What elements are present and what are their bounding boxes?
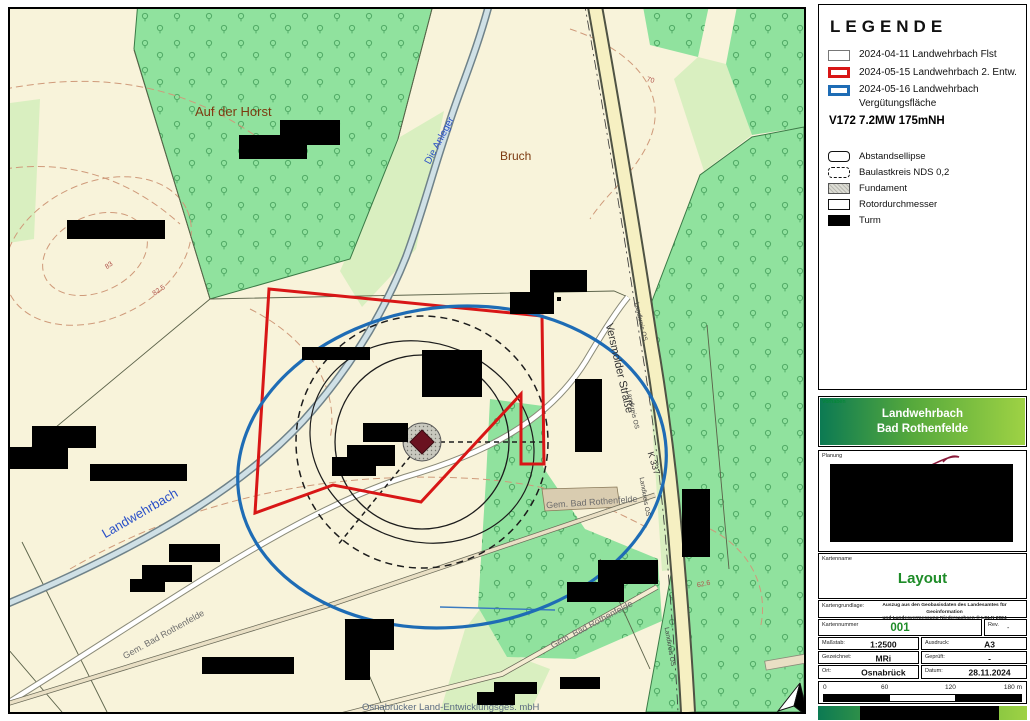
rev-box: Rev. - (984, 619, 1027, 636)
vorhaben-box: Landwehrbach Bad Rothenfelde Vorhaben (818, 396, 1027, 447)
ausdruck-cell: Ausdruck: A3 (921, 637, 1027, 650)
scale-tick-120: 120 (945, 684, 956, 691)
datum-value: 28.11.2024 (953, 667, 1026, 677)
kartenname-box: Kartenname Layout (818, 553, 1027, 599)
legend-symbols: Abstandsellipse Baulastkreis NDS 0,2 Fun… (828, 151, 1017, 226)
row-ort-datum: Ort: Osnabrück Datum: 28.11.2024 (818, 665, 1027, 679)
row-massstab-ausdruck: Maßstab: 1:2500 Ausdruck: A3 (818, 637, 1027, 650)
turm-swatch (828, 215, 850, 226)
blue-swatch (828, 85, 850, 96)
planung-redaction (830, 464, 1013, 542)
footer-gradient-strip (818, 706, 1027, 720)
massstab-value: 1:2500 (849, 639, 918, 649)
legend-box: LEGENDE 2024-04-11 Landwehrbach Flst 202… (818, 4, 1027, 390)
vorhaben-line2: Bad Rothenfelde (877, 422, 968, 436)
scalebar-graphic (823, 694, 1022, 702)
baulastkreis-swatch (828, 167, 850, 178)
map-canvas: N Auf der Horst Bruch Die Anleger Landwe… (8, 7, 806, 714)
ort-value: Osnabrück (849, 667, 918, 677)
geprueft-value: - (953, 653, 1026, 663)
scale-tick-180: 180 m (1004, 684, 1022, 691)
plan-sheet: N Auf der Horst Bruch Die Anleger Landwe… (0, 0, 1030, 721)
ausdruck-value: A3 (953, 639, 1026, 649)
legend-item-verguetung: 2024-05-16 Landwehrbach (828, 84, 1017, 97)
planung-label: Planung (822, 453, 842, 459)
footer-redaction (860, 706, 999, 720)
fundament-swatch (828, 183, 850, 194)
abstandsellipse-swatch (828, 151, 850, 162)
turbine-spec: V172 7.2MW 175mNH (829, 115, 1017, 127)
label-bruch: Bruch (500, 149, 531, 163)
legend-item-rotordurchmesser: Rotordurchmesser (828, 199, 1017, 210)
geprueft-cell: Geprüft: - (921, 651, 1027, 664)
legend-item-turm: Turm (828, 215, 1017, 226)
kartennummer-label: Kartennummer (822, 622, 858, 628)
planung-box: Planung (818, 450, 1027, 552)
flst-swatch (828, 50, 850, 61)
legend-item-baulastkreis: Baulastkreis NDS 0,2 (828, 167, 1017, 178)
scale-tick-60: 60 (881, 684, 888, 691)
vorhaben-label: Vorhaben (822, 399, 846, 405)
legend-item-abstandsellipse: Abstandsellipse (828, 151, 1017, 162)
row-gezeichnet-geprueft: Gezeichnet: MRi Geprüft: - (818, 651, 1027, 664)
vorhaben-line1: Landwehrbach (882, 407, 963, 421)
gezeichnet-cell: Gezeichnet: MRi (818, 651, 919, 664)
legend-item-entwurf: 2024-05-15 Landwehrbach 2. Entw. (828, 67, 1017, 80)
label-credit: Osnabrücker Land-Entwicklungsges. mbH (362, 702, 540, 712)
scalebar-box: 0 60 120 180 m (818, 681, 1027, 704)
turbine-symbol (403, 423, 441, 461)
scale-tick-0: 0 (823, 684, 827, 691)
rev-value: - (1007, 625, 1009, 632)
rev-label: Rev. (988, 622, 999, 628)
vorhaben-gradient: Landwehrbach Bad Rothenfelde (820, 398, 1025, 445)
ort-cell: Ort: Osnabrück (818, 665, 919, 679)
legend-item-flst: 2024-04-11 Landwehrbach Flst (828, 49, 1017, 62)
legend-title: LEGENDE (830, 17, 1017, 37)
datum-cell: Datum: 28.11.2024 (921, 665, 1027, 679)
label-auf-der-horst: Auf der Horst (195, 104, 272, 119)
rotordurchmesser-swatch (828, 199, 850, 210)
legend-item-fundament: Fundament (828, 183, 1017, 194)
massstab-cell: Maßstab: 1:2500 (818, 637, 919, 650)
kartenname-label: Kartenname (822, 556, 852, 562)
kartennummer-box: Kartennummer 001 (818, 619, 982, 636)
kartenname-value: Layout (819, 570, 1026, 587)
map-svg: N Auf der Horst Bruch Die Anleger Landwe… (10, 9, 804, 712)
title-block-panel: LEGENDE 2024-04-11 Landwehrbach Flst 202… (818, 4, 1029, 720)
gezeichnet-value: MRi (849, 653, 918, 663)
red-swatch (828, 67, 850, 78)
kartengrundlage-box: Kartengrundlage: Auszug aus den Geobasis… (818, 600, 1027, 618)
legend-item-verguetung-line2: Vergütungsfläche (859, 98, 1017, 109)
kartengrundlage-label: Kartengrundlage: (822, 603, 864, 609)
